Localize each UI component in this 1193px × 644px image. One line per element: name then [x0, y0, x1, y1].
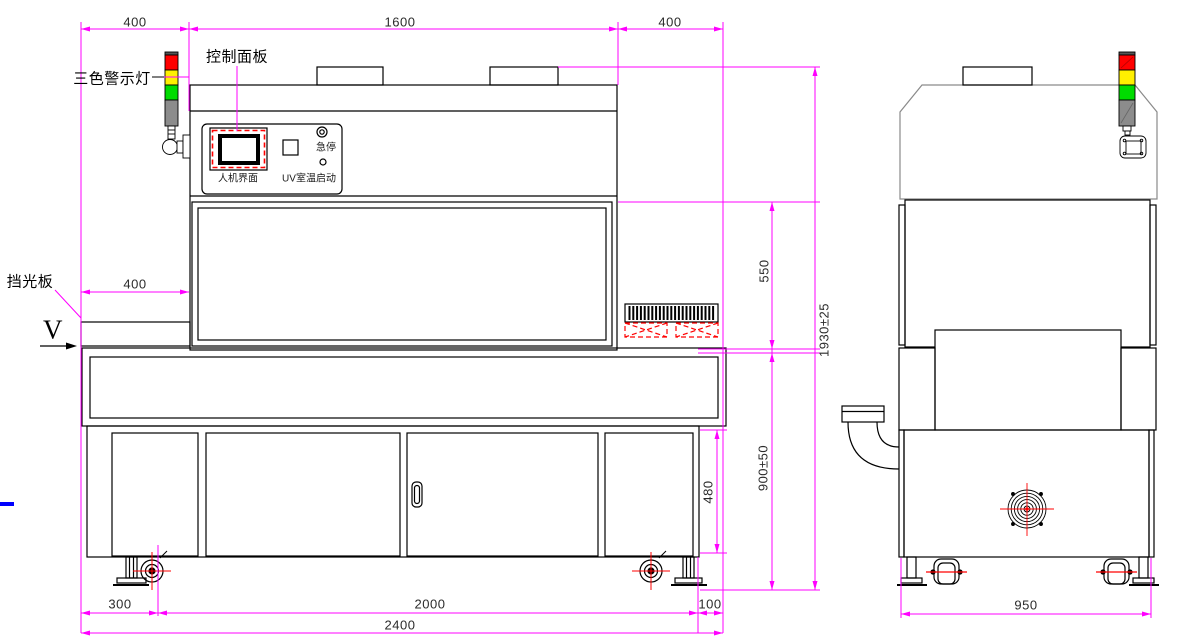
label-estop: 急停 [316, 139, 336, 154]
warning-light-side [1119, 52, 1146, 158]
dim-caster-offset: 300 [108, 597, 131, 612]
label-start: 启动 [316, 170, 336, 185]
conveyor [82, 348, 726, 426]
dim-conveyor-height: 900±50 [756, 445, 771, 491]
warning-light-front [163, 52, 191, 158]
leveling-foot-right [671, 557, 707, 585]
dim-total-height: 1930±25 [817, 303, 832, 357]
dim-cabinet-span: 2000 [415, 597, 446, 612]
blue-edge-mark [0, 502, 14, 506]
cabinet [87, 426, 699, 557]
warning-green [165, 85, 178, 100]
exhaust-duct [842, 406, 899, 469]
light-shield-plate [81, 322, 190, 346]
dim-side-width: 950 [1014, 598, 1037, 613]
cabinet-door-4 [605, 433, 693, 556]
label-warning-light: 三色警示灯 [73, 68, 151, 89]
side-conveyor [935, 330, 1121, 430]
warning-gray [165, 100, 178, 126]
view-marker: V [43, 315, 63, 346]
cooling-fan [1000, 483, 1054, 536]
label-light-shield: 挡光板 [7, 271, 54, 292]
label-uv-temp: UV室温 [282, 170, 316, 185]
dim-hood-height: 550 [757, 259, 772, 282]
uv-temp-button [283, 140, 298, 155]
warning-red [165, 55, 178, 70]
dim-left-offset: 400 [123, 15, 146, 30]
label-hmi: 人机界面 [218, 170, 258, 185]
side-caster-right [1096, 559, 1137, 584]
cabinet-door-1 [112, 433, 198, 556]
dim-right-foot-offset: 100 [698, 597, 721, 612]
side-foot-right [1129, 557, 1159, 585]
drawing-svg [0, 0, 1193, 644]
uv-chamber-door [192, 202, 612, 346]
side-hood [900, 85, 1157, 199]
dim-shield-width: 400 [123, 277, 146, 292]
hmi-screen [220, 136, 258, 163]
cabinet-door-3 [407, 433, 598, 556]
estop-button [317, 127, 327, 137]
dim-cabinet-height: 480 [701, 480, 716, 503]
dim-body-width: 1600 [385, 15, 416, 30]
side-mid-body [905, 200, 1150, 347]
start-button [320, 159, 326, 165]
top-vent-1 [317, 67, 383, 85]
dim-right-offset: 400 [658, 15, 681, 30]
dim-total-length: 2400 [385, 618, 416, 633]
dimension-lines [55, 22, 1151, 633]
side-caster-left [926, 559, 967, 584]
front-view [81, 52, 726, 590]
drawing-canvas: 400 1600 400 400 300 2000 100 2400 950 5… [0, 0, 1193, 644]
label-control-panel: 控制面板 [206, 46, 268, 67]
uv-fans [625, 323, 718, 337]
top-vent-2 [490, 67, 558, 85]
front-body [190, 85, 617, 350]
side-view [842, 52, 1159, 585]
cabinet-door-2 [206, 433, 400, 556]
side-top-vent [963, 67, 1032, 85]
